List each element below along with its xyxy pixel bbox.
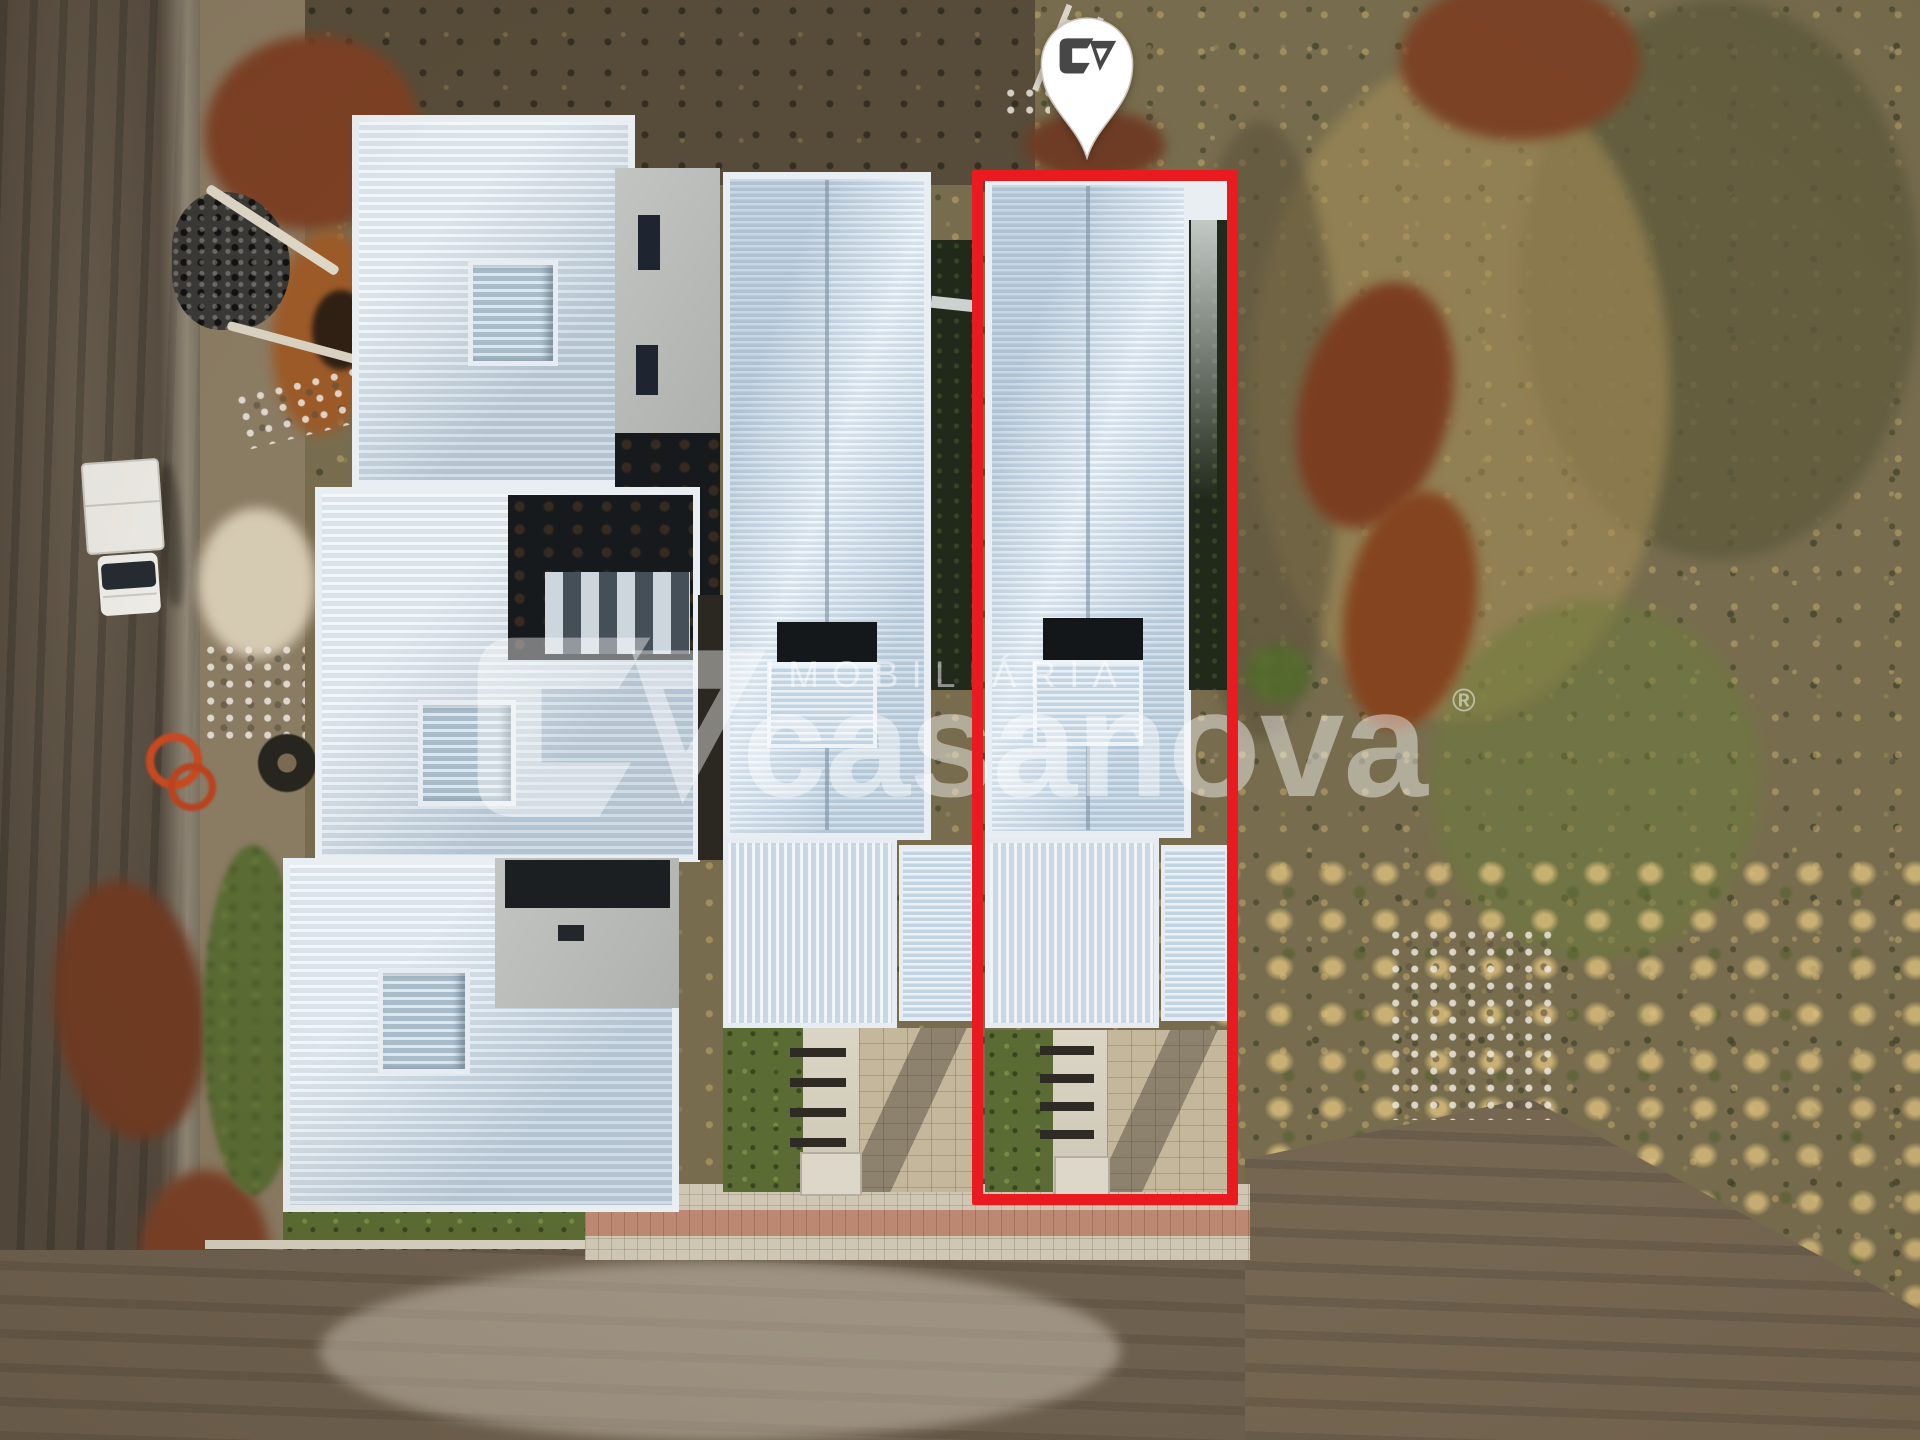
location-pin [1028,8,1146,160]
watermark-logo-monogram [452,612,772,836]
aerial-photo: IMOBILIÁRIA casanova ® [0,0,1920,1440]
watermark-registered-icon: ® [1452,684,1476,716]
property-highlight-outline [972,170,1238,1205]
